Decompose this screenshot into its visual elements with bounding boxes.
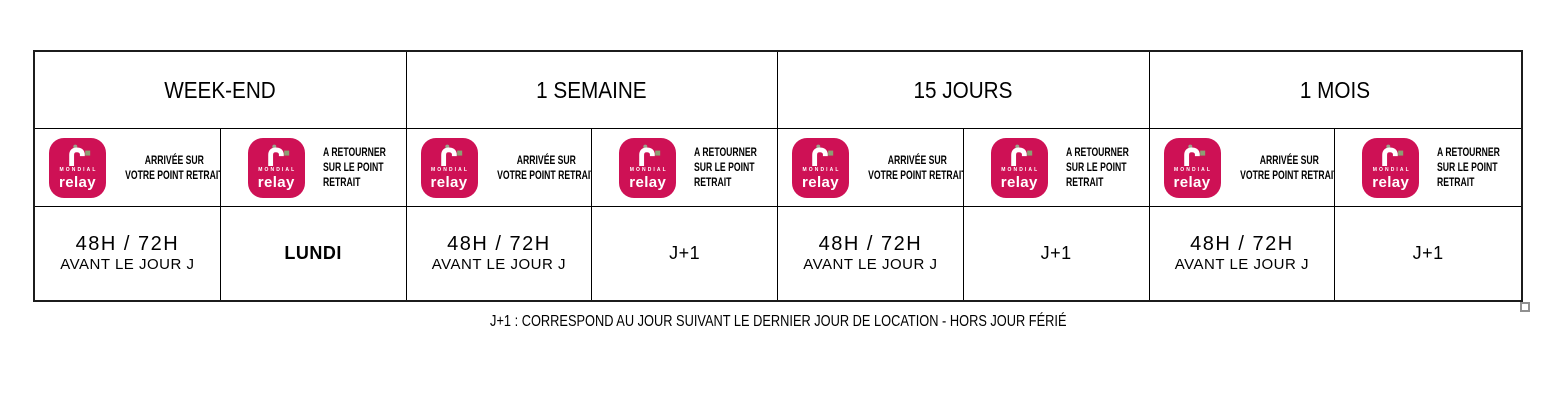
mondial-relay-logo: MONDIAL relay: [248, 138, 305, 198]
arrival-label-line: ARRIVÉE SUR: [125, 153, 221, 168]
return-info-cell: MONDIAL relay A RETOURNER SUR LE POINT R…: [221, 129, 407, 207]
arrival-label-line: ARRIVÉE SUR: [868, 153, 964, 168]
arrival-label: ARRIVÉE SUR VOTRE POINT RETRAIT: [497, 153, 593, 183]
arrival-label-line: VOTRE POINT RETRAIT: [497, 168, 593, 183]
return-info-cell: MONDIAL relay A RETOURNER SUR LE POINT R…: [592, 129, 778, 207]
header-1-mois: 1 MOIS: [1150, 52, 1522, 129]
mondial-relay-icon: [1003, 144, 1036, 166]
mondial-relay-icon: [1374, 144, 1407, 166]
logo-text-relay: relay: [629, 175, 666, 190]
return-info-cell: MONDIAL relay A RETOURNER SUR LE POINT R…: [964, 129, 1150, 207]
return-label-line: A RETOURNER: [1066, 145, 1129, 160]
header-label: WEEK-END: [164, 77, 276, 104]
logo-text-mondial: MONDIAL: [258, 168, 296, 173]
mondial-relay-logo: MONDIAL relay: [1164, 138, 1221, 198]
mondial-relay-icon: [61, 144, 94, 166]
logo-text-mondial: MONDIAL: [1174, 168, 1212, 173]
arrival-delay: 48H / 72H: [1190, 233, 1294, 256]
arrival-label: ARRIVÉE SUR VOTRE POINT RETRAIT: [868, 153, 964, 183]
mondial-relay-logo: MONDIAL relay: [49, 138, 106, 198]
return-label-line: RETRAIT: [1066, 175, 1129, 190]
return-label: A RETOURNER SUR LE POINT RETRAIT: [1066, 145, 1129, 190]
arrival-label-line: VOTRE POINT RETRAIT: [125, 168, 221, 183]
logo-text-relay: relay: [1001, 175, 1038, 190]
arrival-delay: 48H / 72H: [819, 233, 923, 256]
arrival-delay: 48H / 72H: [447, 233, 551, 256]
header-label: 1 SEMAINE: [537, 77, 647, 104]
arrival-label-line: ARRIVÉE SUR: [1240, 153, 1336, 168]
arrival-delay-note: AVANT LE JOUR J: [60, 256, 194, 273]
logo-text-mondial: MONDIAL: [1001, 168, 1039, 173]
return-day-cell: J+1: [592, 207, 778, 300]
mondial-relay-icon: [1176, 144, 1209, 166]
return-label-line: A RETOURNER: [1437, 145, 1500, 160]
arrival-info-cell: MONDIAL relay ARRIVÉE SUR VOTRE POINT RE…: [1150, 129, 1336, 207]
return-label-line: A RETOURNER: [323, 145, 386, 160]
return-day: LUNDI: [284, 243, 342, 264]
logo-text-relay: relay: [1372, 175, 1409, 190]
return-day-cell: J+1: [1335, 207, 1521, 300]
arrival-delay: 48H / 72H: [76, 233, 180, 256]
return-label-line: SUR LE POINT: [1066, 160, 1129, 175]
mondial-relay-logo: MONDIAL relay: [1362, 138, 1419, 198]
arrival-info-cell: MONDIAL relay ARRIVÉE SUR VOTRE POINT RE…: [35, 129, 221, 207]
logo-text-relay: relay: [59, 175, 96, 190]
mondial-relay-icon: [804, 144, 837, 166]
header-label: 1 MOIS: [1300, 77, 1370, 104]
arrival-info-cell: MONDIAL relay ARRIVÉE SUR VOTRE POINT RE…: [778, 129, 964, 207]
return-label: A RETOURNER SUR LE POINT RETRAIT: [1437, 145, 1500, 190]
arrival-label-line: VOTRE POINT RETRAIT: [1240, 168, 1336, 183]
return-day: J+1: [1041, 243, 1072, 264]
arrival-delay-cell: 48H / 72H AVANT LE JOUR J: [407, 207, 593, 300]
arrival-delay-cell: 48H / 72H AVANT LE JOUR J: [35, 207, 221, 300]
arrival-delay-cell: 48H / 72H AVANT LE JOUR J: [1150, 207, 1336, 300]
arrival-label: ARRIVÉE SUR VOTRE POINT RETRAIT: [125, 153, 221, 183]
header-label: 15 JOURS: [914, 77, 1013, 104]
arrival-label-line: ARRIVÉE SUR: [497, 153, 593, 168]
mondial-relay-logo: MONDIAL relay: [619, 138, 676, 198]
return-label-line: RETRAIT: [1437, 175, 1500, 190]
arrival-info-cell: MONDIAL relay ARRIVÉE SUR VOTRE POINT RE…: [407, 129, 593, 207]
return-day-cell: J+1: [964, 207, 1150, 300]
header-weekend: WEEK-END: [35, 52, 407, 129]
mondial-relay-logo: MONDIAL relay: [421, 138, 478, 198]
logo-text-mondial: MONDIAL: [1373, 168, 1411, 173]
mondial-relay-logo: MONDIAL relay: [792, 138, 849, 198]
return-label: A RETOURNER SUR LE POINT RETRAIT: [694, 145, 757, 190]
footnote-text: J+1 : CORRESPOND AU JOUR SUIVANT LE DERN…: [490, 312, 1066, 332]
arrival-delay-note: AVANT LE JOUR J: [803, 256, 937, 273]
return-label-line: A RETOURNER: [694, 145, 757, 160]
header-1-semaine: 1 SEMAINE: [407, 52, 779, 129]
return-label-line: RETRAIT: [694, 175, 757, 190]
return-label-line: RETRAIT: [323, 175, 386, 190]
mondial-relay-icon: [433, 144, 466, 166]
arrival-delay-note: AVANT LE JOUR J: [1175, 256, 1309, 273]
return-label: A RETOURNER SUR LE POINT RETRAIT: [323, 145, 386, 190]
footnote: J+1 : CORRESPOND AU JOUR SUIVANT LE DERN…: [33, 312, 1523, 332]
arrival-delay-cell: 48H / 72H AVANT LE JOUR J: [778, 207, 964, 300]
logo-text-mondial: MONDIAL: [431, 168, 469, 173]
header-15-jours: 15 JOURS: [778, 52, 1150, 129]
arrival-label-line: VOTRE POINT RETRAIT: [868, 168, 964, 183]
return-info-cell: MONDIAL relay A RETOURNER SUR LE POINT R…: [1335, 129, 1521, 207]
return-day: J+1: [669, 243, 700, 264]
return-day-cell: LUNDI: [221, 207, 407, 300]
mondial-relay-icon: [631, 144, 664, 166]
return-day: J+1: [1413, 243, 1444, 264]
return-label-line: SUR LE POINT: [1437, 160, 1500, 175]
logo-text-relay: relay: [802, 175, 839, 190]
rental-schedule-table: WEEK-END 1 SEMAINE 15 JOURS 1 MOIS MONDI…: [33, 50, 1523, 302]
logo-text-mondial: MONDIAL: [802, 168, 840, 173]
logo-text-mondial: MONDIAL: [59, 168, 97, 173]
mondial-relay-logo: MONDIAL relay: [991, 138, 1048, 198]
mondial-relay-icon: [260, 144, 293, 166]
return-label-line: SUR LE POINT: [323, 160, 386, 175]
logo-text-relay: relay: [1173, 175, 1210, 190]
arrival-delay-note: AVANT LE JOUR J: [432, 256, 566, 273]
return-label-line: SUR LE POINT: [694, 160, 757, 175]
logo-text-relay: relay: [430, 175, 467, 190]
logo-text-mondial: MONDIAL: [630, 168, 668, 173]
logo-text-relay: relay: [258, 175, 295, 190]
resize-handle[interactable]: [1520, 302, 1530, 312]
arrival-label: ARRIVÉE SUR VOTRE POINT RETRAIT: [1240, 153, 1336, 183]
